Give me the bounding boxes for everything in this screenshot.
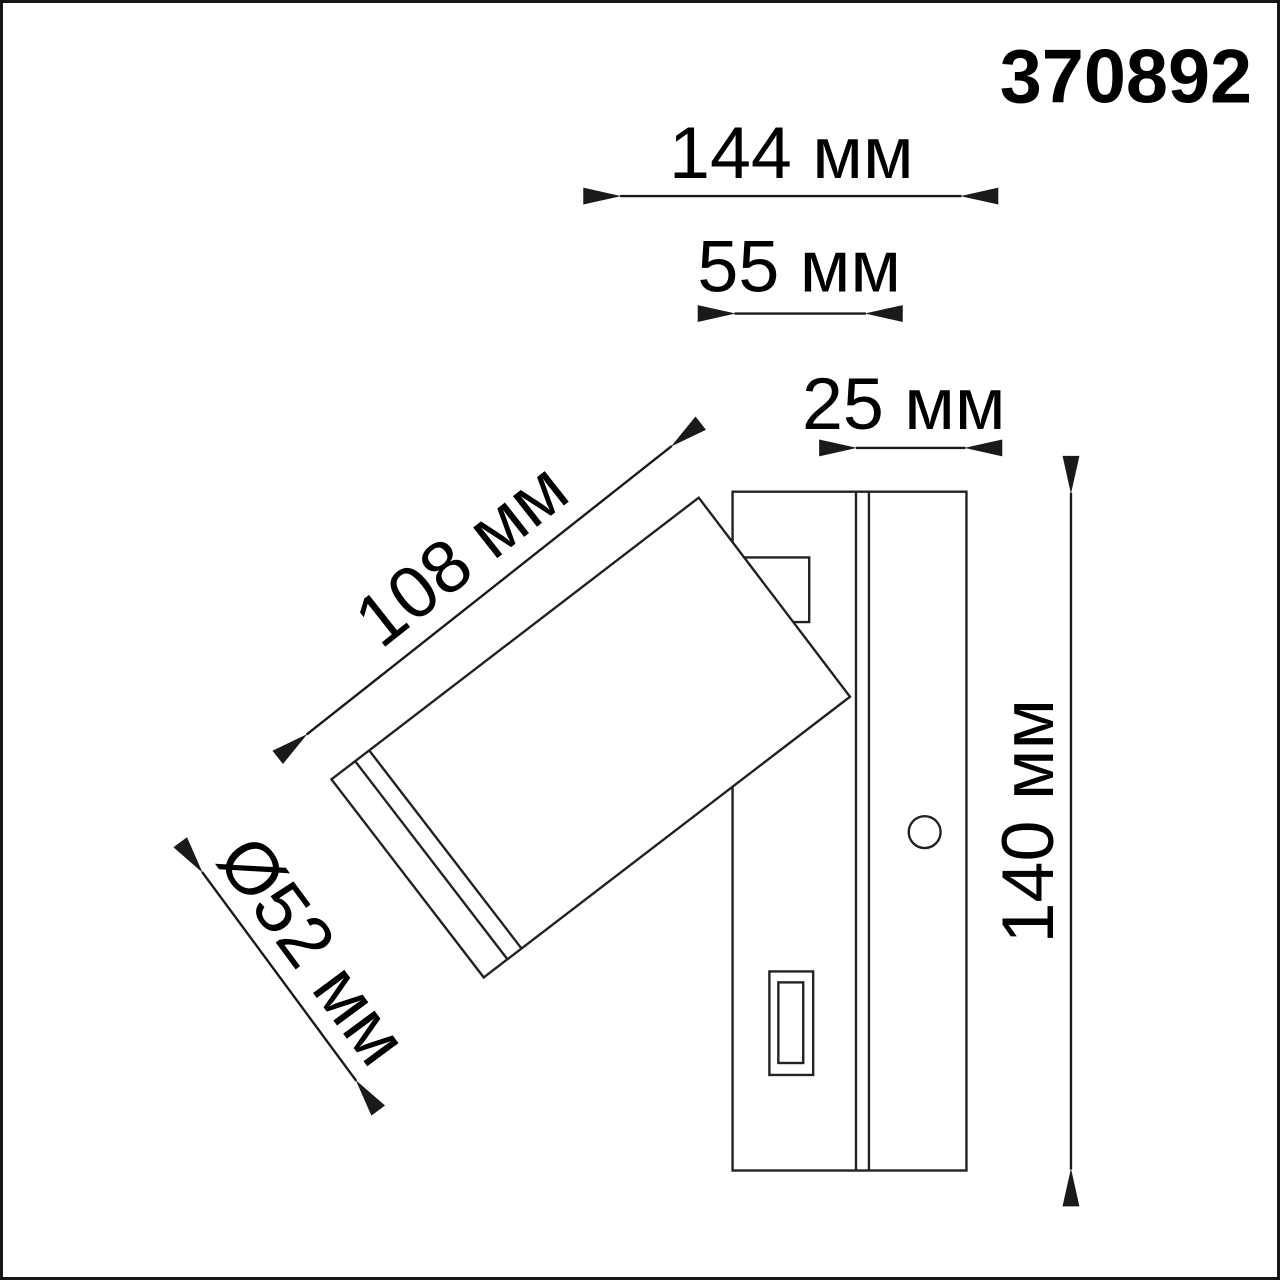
plate-depth-label: 25 мм bbox=[802, 362, 1006, 445]
part-number-label: 370892 bbox=[1000, 36, 1252, 120]
total-width-label: 144 мм bbox=[669, 111, 914, 194]
head-diameter-label: Ø52 мм bbox=[202, 821, 424, 1080]
arm-depth-label: 55 мм bbox=[697, 225, 901, 308]
dimension-head-diameter: Ø52 мм bbox=[202, 821, 424, 1081]
technical-drawing-page: 370892 144 мм 55 мм bbox=[0, 0, 1280, 1280]
dimension-height: 140 мм bbox=[986, 493, 1071, 1170]
dimension-diagram: 370892 144 мм 55 мм bbox=[3, 3, 1277, 1277]
dimension-total-width: 144 мм bbox=[620, 111, 961, 196]
dimension-plate-depth: 25 мм bbox=[802, 362, 1006, 448]
height-label: 140 мм bbox=[986, 699, 1069, 944]
dimension-arm-depth: 55 мм bbox=[697, 225, 901, 314]
